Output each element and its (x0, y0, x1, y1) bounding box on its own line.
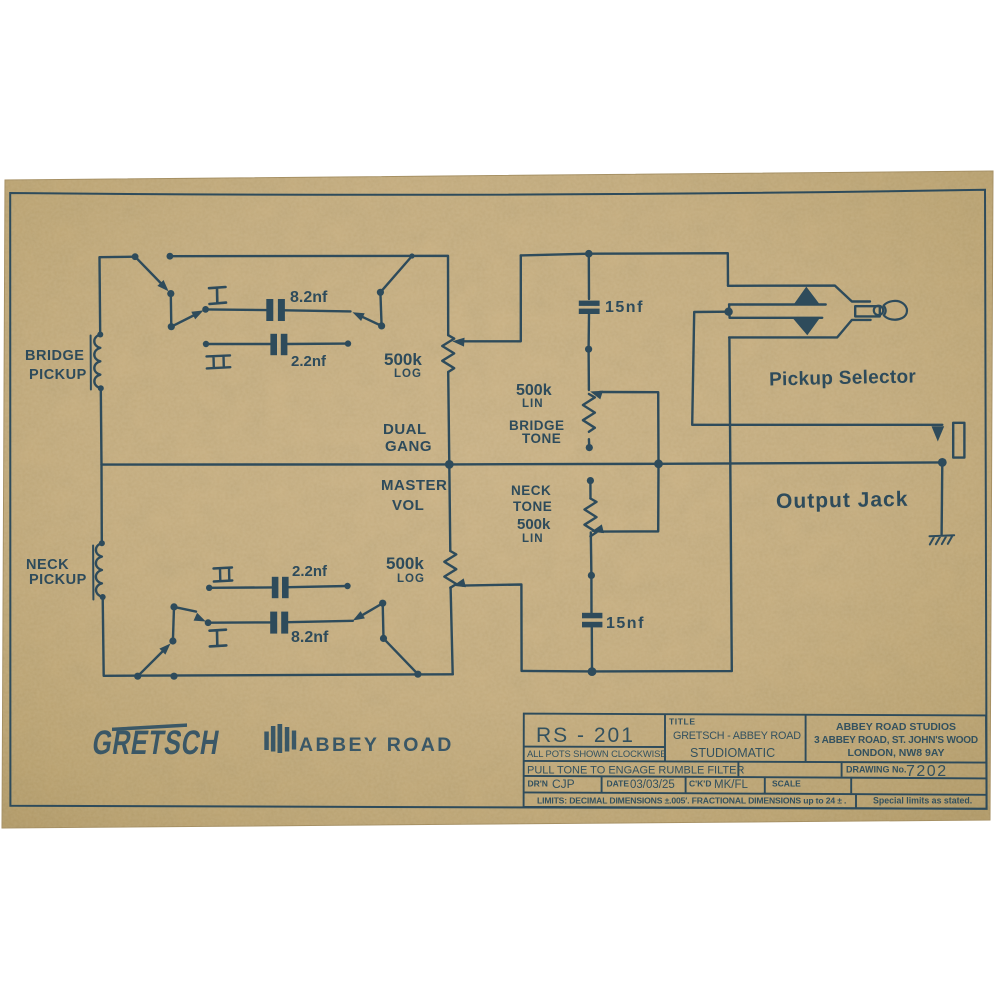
svg-text:500k: 500k (517, 516, 551, 533)
svg-text:500k: 500k (384, 350, 422, 369)
svg-text:MASTER: MASTER (381, 477, 447, 494)
svg-text:ABBEY ROAD STUDIOS: ABBEY ROAD STUDIOS (836, 721, 956, 733)
svg-text:500k: 500k (516, 382, 552, 399)
svg-text:STUDIOMATIC: STUDIOMATIC (690, 746, 775, 760)
svg-text:GANG: GANG (385, 438, 432, 455)
svg-text:03/03/25: 03/03/25 (630, 779, 675, 791)
svg-text:500k: 500k (386, 554, 424, 573)
svg-text:RS - 201: RS - 201 (536, 724, 635, 747)
svg-text:SCALE: SCALE (772, 779, 801, 789)
svg-text:LOG: LOG (394, 368, 422, 380)
svg-text:2.2nf: 2.2nf (292, 563, 328, 580)
svg-text:Pickup Selector: Pickup Selector (769, 366, 917, 390)
svg-text:NECK: NECK (26, 557, 69, 573)
svg-text:2.2nf: 2.2nf (291, 353, 327, 370)
svg-text:CJP: CJP (552, 777, 575, 791)
svg-text:GRETSCH - ABBEY ROAD: GRETSCH - ABBEY ROAD (673, 730, 801, 742)
svg-text:VOL: VOL (392, 497, 424, 514)
svg-text:8.2nf: 8.2nf (290, 289, 328, 306)
svg-text:DATE: DATE (607, 779, 630, 789)
svg-text:TONE: TONE (513, 499, 552, 514)
svg-text:LONDON, NW8 9AY: LONDON, NW8 9AY (847, 747, 944, 759)
svg-text:TITLE: TITLE (669, 717, 696, 727)
svg-text:15nf: 15nf (605, 299, 644, 316)
svg-text:NECK: NECK (511, 483, 551, 498)
svg-text:Output Jack: Output Jack (776, 488, 909, 513)
svg-text:3 ABBEY ROAD, ST. JOHN'S WOOD: 3 ABBEY ROAD, ST. JOHN'S WOOD (814, 735, 978, 746)
svg-text:GRETSCH: GRETSCH (90, 725, 223, 762)
svg-text:MK/FL: MK/FL (714, 779, 748, 791)
svg-text:PICKUP: PICKUP (29, 572, 87, 588)
svg-text:Special limits as stated.: Special limits as stated. (873, 796, 972, 806)
svg-text:DRAWING No.: DRAWING No. (846, 765, 907, 775)
svg-text:BRIDGE: BRIDGE (25, 348, 84, 364)
svg-text:7202: 7202 (906, 763, 948, 780)
svg-text:15nf: 15nf (606, 615, 645, 632)
svg-text:LIN: LIN (522, 398, 544, 410)
svg-text:PICKUP: PICKUP (29, 367, 87, 383)
svg-text:ABBEY ROAD: ABBEY ROAD (299, 734, 454, 756)
svg-text:8.2nf: 8.2nf (291, 629, 329, 646)
svg-text:LIN: LIN (522, 533, 544, 545)
svg-text:TONE: TONE (522, 431, 561, 446)
svg-text:ALL POTS SHOWN CLOCKWISE: ALL POTS SHOWN CLOCKWISE (527, 748, 666, 759)
svg-text:LIMITS: DECIMAL DIMENSIONS ±.0: LIMITS: DECIMAL DIMENSIONS ±.005′. FRACT… (537, 796, 846, 806)
svg-text:C'K'D: C'K'D (689, 779, 711, 789)
svg-text:LOG: LOG (397, 573, 425, 585)
svg-text:PULL TONE TO ENGAGE RUMBLE FIL: PULL TONE TO ENGAGE RUMBLE FILTER (527, 765, 744, 777)
svg-text:DUAL: DUAL (383, 421, 427, 438)
svg-text:DR'N: DR'N (528, 779, 548, 789)
